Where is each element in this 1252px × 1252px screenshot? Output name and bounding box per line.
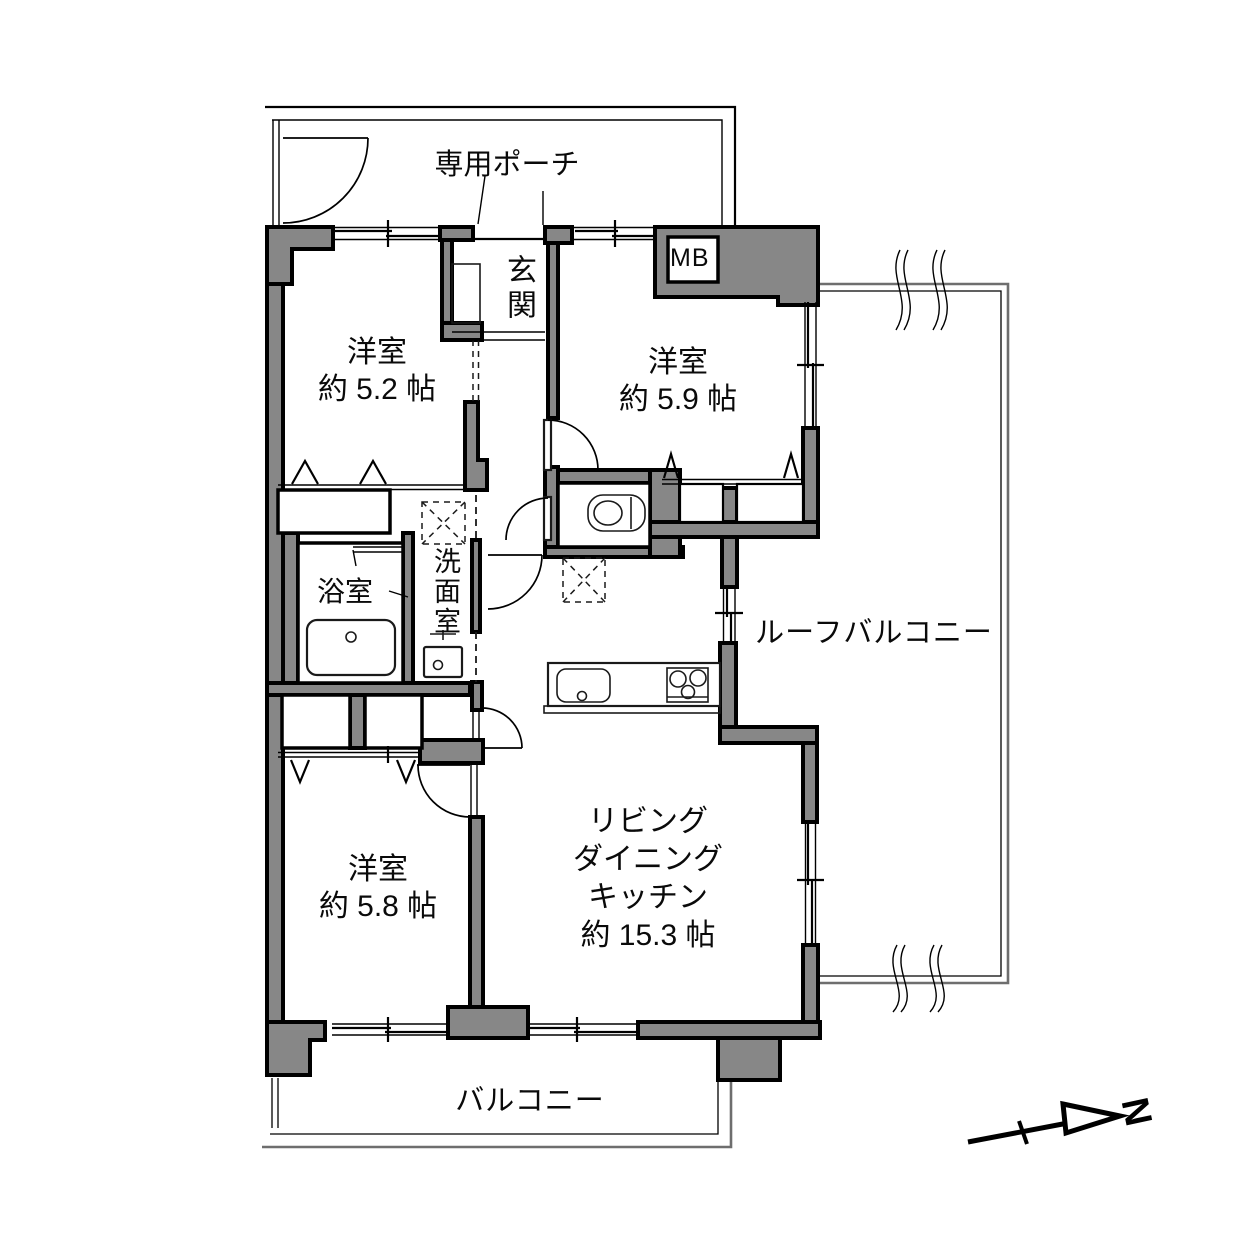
washroom-label: 洗面室 [426,547,465,637]
toilet-room [558,483,650,547]
window-ldk-south [528,1017,638,1042]
bedroom-c-label: 洋室 約 5.8 帖 [319,851,437,925]
meter-box-label: MB [670,244,710,273]
closet-bedroom-b-right [737,484,803,522]
shoe-cabinet [452,264,480,323]
closet-bedroom-c-left [282,695,350,748]
bedroom-b-size: 約 5.9 帖 [619,381,737,418]
closet-bedroom-b-left [680,484,723,522]
ldk-size: 約 15.3 帖 [573,917,723,955]
window-kitchen-east [715,587,743,643]
door-bedroom-c [417,763,477,817]
bedroom-a-name: 洋室 [318,334,436,371]
floor-plan: N 専用ポーチ 玄関 MB 洋室 約 5.2 帖 洋室 約 5.9 帖 浴室 洗… [0,0,1252,1252]
washing-machine-space [422,502,465,544]
ldk-line3: キッチン [573,879,723,917]
compass-north-label: N [1113,1094,1160,1130]
closet-bedroom-a [278,490,390,533]
door-ldk-north [488,555,542,609]
bedroom-b-name: 洋室 [619,344,737,381]
roof-balcony-label: ルーフバルコニー [755,609,993,651]
window-bedroom-b-east [797,302,824,428]
bath-label: 浴室 [317,570,373,610]
bathtub [307,620,395,675]
ldk-label: リビング ダイニング キッチン 約 15.3 帖 [573,803,723,955]
ldk-line2: ダイニング [573,841,723,879]
entrance-label: 玄関 [496,254,540,324]
window-bedroom-c-south [332,1017,448,1042]
door-bedroom-b [544,420,598,470]
floor-plan-drawing: N [0,0,1252,1252]
refrigerator-space [563,558,605,602]
balcony-label: バルコニー [455,1077,604,1119]
compass: N [968,1094,1159,1144]
washroom-sink [424,630,462,677]
kitchen-counter [544,663,720,713]
bedroom-a-size: 約 5.2 帖 [318,371,436,408]
window-ldk-east [797,822,824,945]
door-washroom [506,497,551,540]
ldk-line1: リビング [573,803,723,841]
compass-line [968,1123,1068,1142]
bedroom-a-label: 洋室 約 5.2 帖 [318,334,436,408]
compass-arrowhead [1063,1104,1120,1133]
closet-bedroom-c-right [365,695,422,748]
bedroom-c-name: 洋室 [319,851,437,888]
bedroom-c-size: 約 5.8 帖 [319,888,437,925]
window-bedroom-a-top [333,220,440,247]
sliding-door-bedroom-a [473,340,479,402]
porch-gate-door [283,138,368,223]
window-bedroom-b-top [572,220,655,247]
bedroom-b-label: 洋室 約 5.9 帖 [619,344,737,418]
porch-label: 専用ポーチ [434,141,579,183]
